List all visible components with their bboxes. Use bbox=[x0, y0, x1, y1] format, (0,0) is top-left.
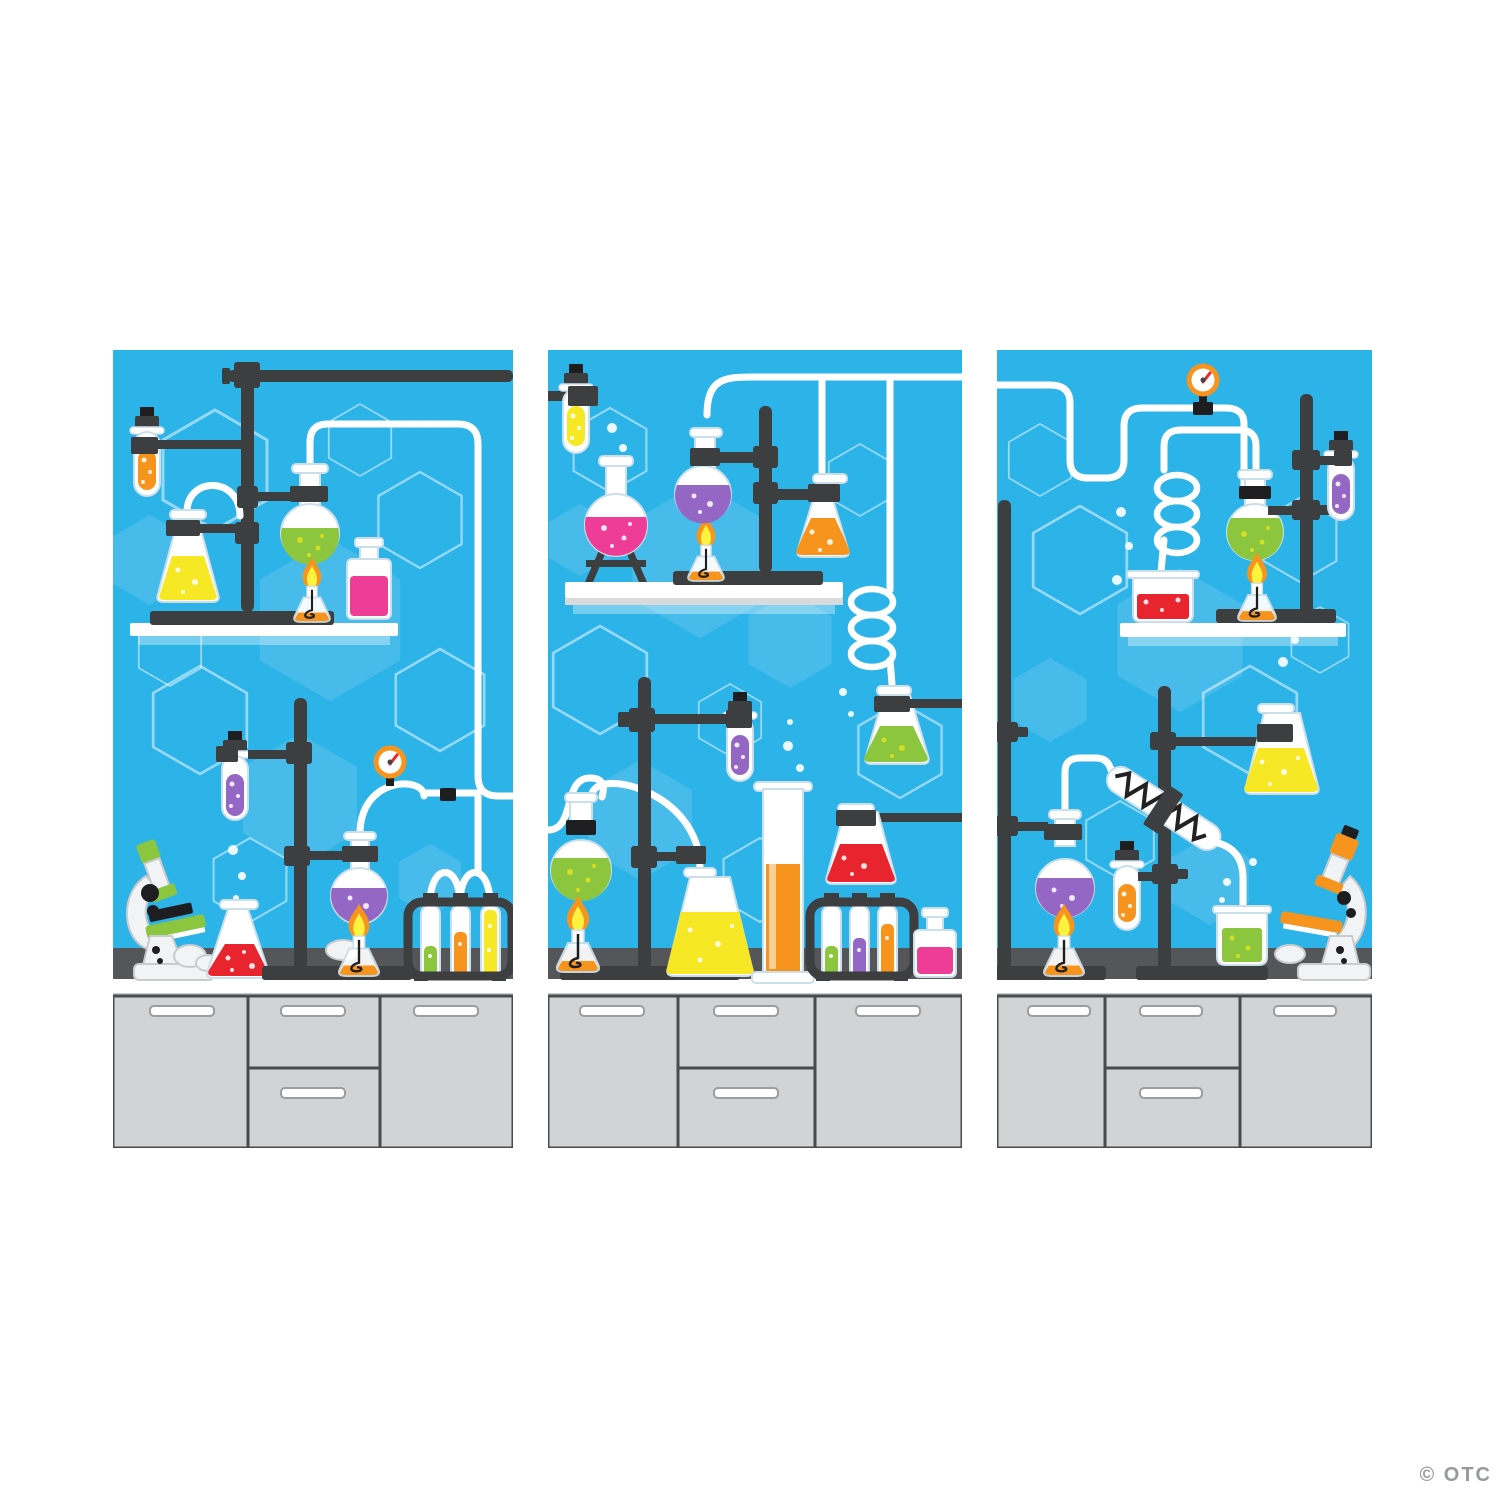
cabinet bbox=[113, 996, 513, 1148]
glass-tubing bbox=[890, 660, 892, 684]
beaker-red bbox=[1127, 571, 1199, 622]
panel-right bbox=[966, 350, 1372, 1148]
wall-shelf bbox=[1120, 623, 1346, 646]
drawer-handle bbox=[714, 1006, 778, 1016]
cabinet-handle bbox=[414, 1006, 478, 1016]
cabinet-handle bbox=[580, 1006, 644, 1016]
cabinet-handle bbox=[150, 1006, 214, 1016]
test-tube-rack bbox=[408, 893, 512, 981]
cabinet-handle bbox=[1274, 1006, 1336, 1016]
product-image: © OTC bbox=[0, 0, 1500, 1500]
glass-tubing bbox=[1161, 540, 1164, 572]
panel-left bbox=[111, 350, 513, 1148]
drawer-handle bbox=[714, 1088, 778, 1098]
cabinet-handle bbox=[856, 1006, 920, 1016]
counter-edge bbox=[997, 979, 1372, 993]
drawer-handle bbox=[281, 1088, 345, 1098]
wall-shelf bbox=[565, 582, 843, 614]
cabinet bbox=[548, 996, 962, 1148]
wall-shelf bbox=[130, 623, 398, 645]
watermark: © OTC bbox=[1392, 1464, 1492, 1487]
cabinet-handle bbox=[1028, 1006, 1090, 1016]
drawer-handle bbox=[1140, 1088, 1202, 1098]
drawer-handle bbox=[281, 1006, 345, 1016]
panel-middle bbox=[548, 350, 962, 1148]
counter-edge bbox=[113, 979, 513, 993]
drawer-handle bbox=[1140, 1006, 1202, 1016]
cabinet bbox=[997, 996, 1372, 1148]
tube-fitting bbox=[440, 788, 456, 801]
beaker-green bbox=[1213, 906, 1271, 965]
lab-backdrop-illustration bbox=[0, 0, 1500, 1500]
